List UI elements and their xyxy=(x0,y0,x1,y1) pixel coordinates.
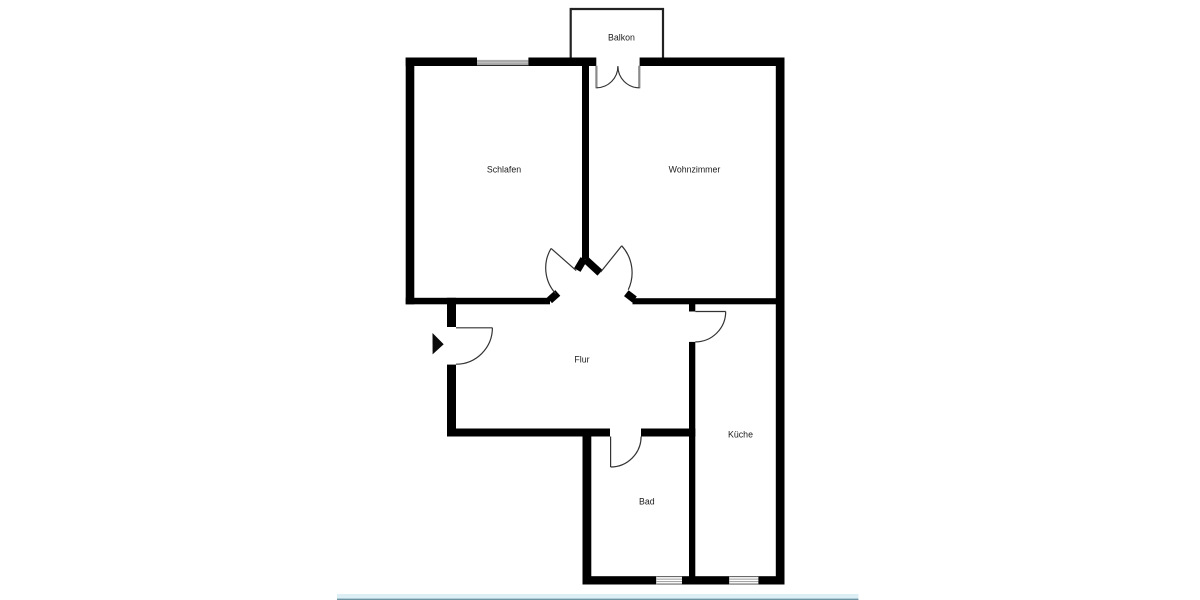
svg-text:Bad: Bad xyxy=(639,497,655,507)
svg-text:Schlafen: Schlafen xyxy=(487,165,521,175)
svg-text:Flur: Flur xyxy=(574,354,589,364)
svg-text:Balkon: Balkon xyxy=(608,33,635,43)
svg-text:Küche: Küche xyxy=(728,430,753,440)
svg-text:Wohnzimmer: Wohnzimmer xyxy=(669,165,721,175)
